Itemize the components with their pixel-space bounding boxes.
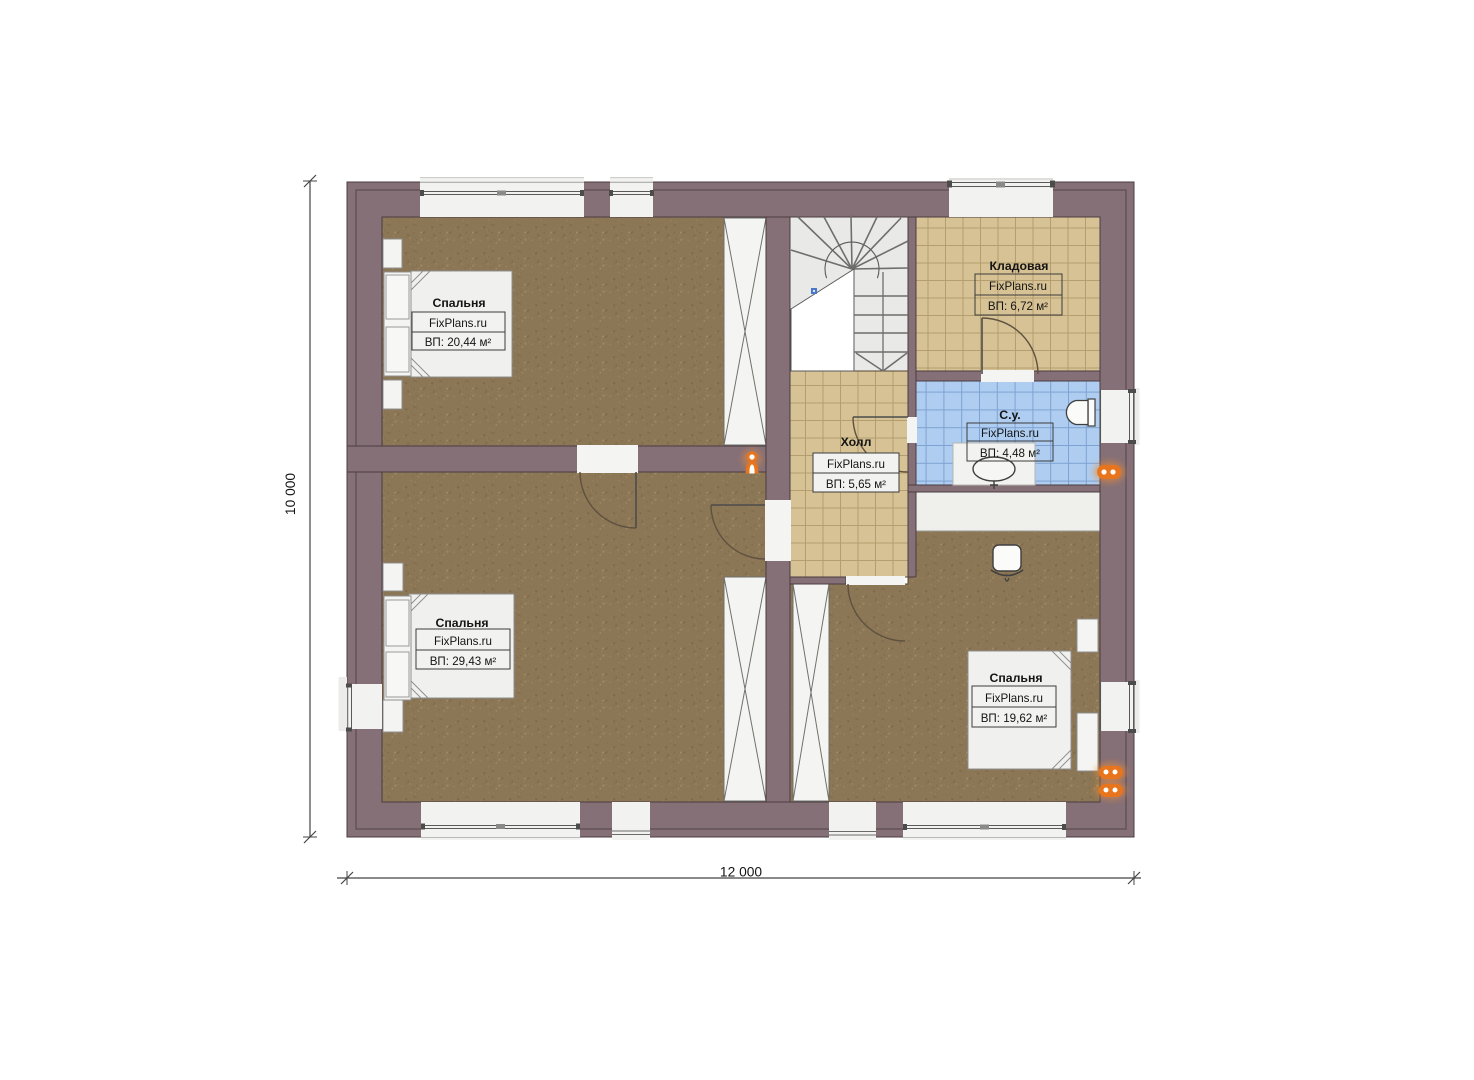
svg-text:FixPlans.ru: FixPlans.ru (827, 458, 885, 471)
svg-text:FixPlans.ru: FixPlans.ru (985, 692, 1043, 705)
svg-text:12 000: 12 000 (720, 865, 763, 880)
svg-text:Спальня: Спальня (435, 616, 488, 630)
svg-text:Холл: Холл (841, 435, 872, 449)
svg-text:Кладовая: Кладовая (990, 259, 1049, 273)
svg-text:ВП: 4,48 м²: ВП: 4,48 м² (980, 447, 1040, 460)
svg-text:ВП: 19,62 м²: ВП: 19,62 м² (981, 712, 1048, 725)
svg-text:FixPlans.ru: FixPlans.ru (989, 280, 1047, 293)
svg-text:ВП: 20,44 м²: ВП: 20,44 м² (425, 336, 492, 349)
svg-text:10 000: 10 000 (283, 473, 298, 516)
svg-text:FixPlans.ru: FixPlans.ru (981, 427, 1039, 440)
svg-text:Спальня: Спальня (432, 296, 485, 310)
svg-text:Спальня: Спальня (989, 671, 1042, 685)
svg-text:FixPlans.ru: FixPlans.ru (434, 635, 492, 648)
svg-text:ВП: 6,72 м²: ВП: 6,72 м² (988, 300, 1048, 313)
svg-text:ВП: 29,43 м²: ВП: 29,43 м² (430, 655, 497, 668)
svg-text:ВП: 5,65 м²: ВП: 5,65 м² (826, 478, 886, 491)
svg-text:FixPlans.ru: FixPlans.ru (429, 317, 487, 330)
svg-text:С.у.: С.у. (999, 408, 1020, 422)
